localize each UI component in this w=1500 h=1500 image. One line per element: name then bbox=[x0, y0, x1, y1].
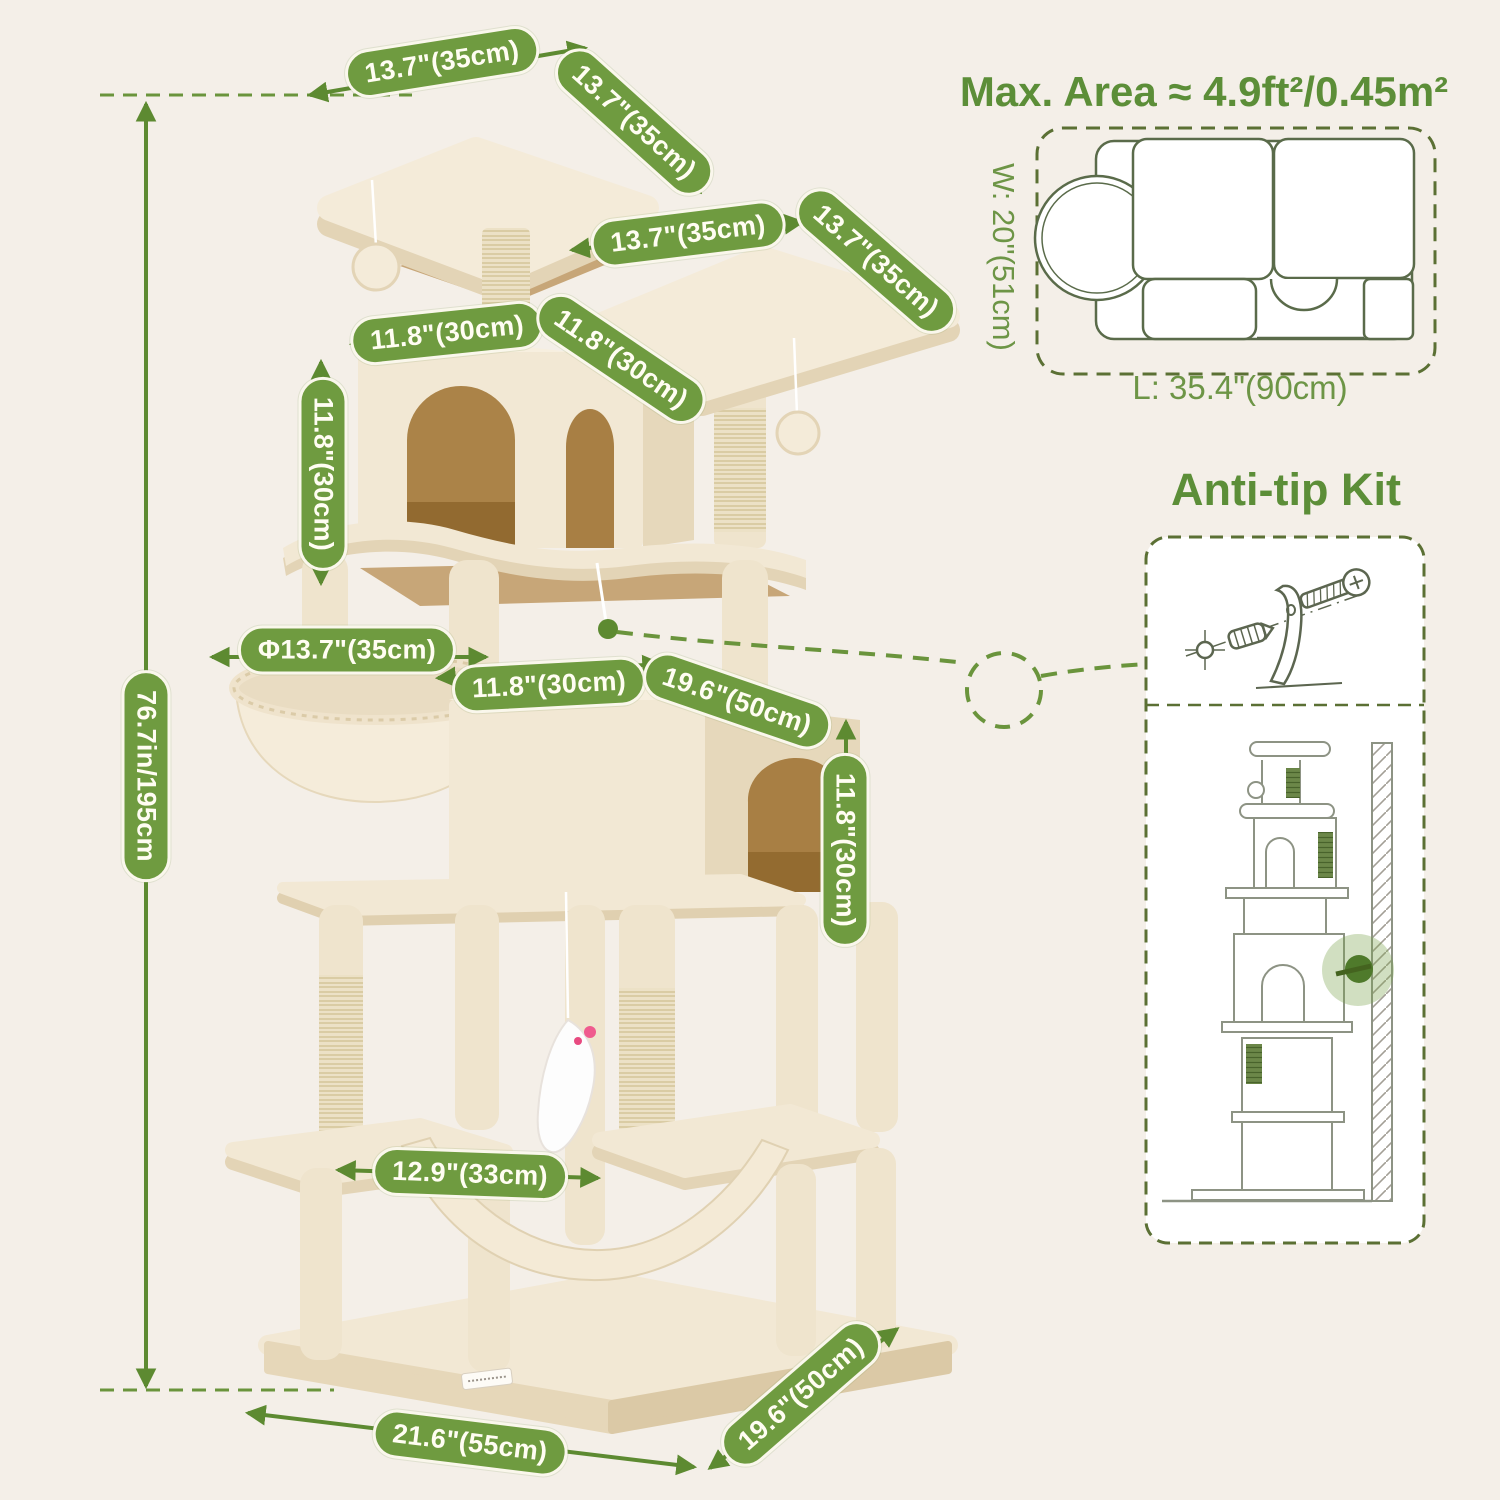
footprint-condo bbox=[1143, 279, 1256, 339]
post bbox=[300, 1168, 342, 1360]
footprint-platform-2 bbox=[1274, 139, 1414, 278]
footprint-diagram bbox=[1035, 128, 1435, 374]
dim-large-condo-width: 11.8"(30cm) bbox=[451, 655, 648, 714]
anti-tip-title: Anti-tip Kit bbox=[1146, 464, 1426, 516]
dim-large-condo-height: 11.8"(30cm) bbox=[821, 753, 870, 947]
anti-tip-panel bbox=[1146, 537, 1424, 1243]
dim-hammock-width: 12.9"(33cm) bbox=[371, 1146, 568, 1202]
scratching-post-sisal bbox=[319, 975, 363, 1145]
post bbox=[455, 905, 499, 1130]
footprint-platform-1 bbox=[1133, 139, 1273, 279]
footprint-width-label: W: 20"(51cm) bbox=[985, 163, 1021, 351]
footprint-length-label: L: 35.4"(90cm) bbox=[1132, 369, 1347, 407]
callout-dot bbox=[598, 619, 618, 639]
pompom-ball-1 bbox=[353, 244, 399, 290]
max-area-title: Max. Area ≈ 4.9ft²/0.45m² bbox=[958, 68, 1450, 116]
second-post-sisal bbox=[714, 408, 766, 532]
dim-condo-height: 11.8"(30cm) bbox=[299, 377, 348, 571]
footprint-board bbox=[1364, 279, 1413, 339]
post bbox=[856, 1148, 896, 1348]
pompom-ball-2 bbox=[777, 412, 819, 454]
post bbox=[776, 1164, 816, 1356]
dim-basket-diameter: Φ13.7"(35cm) bbox=[238, 626, 456, 675]
product-dimensions-infographic: 76.7in/195cm 13.7"(35cm) 13.7"(35cm) 13.… bbox=[0, 0, 1500, 1500]
dim-overall-height: 76.7in/195cm bbox=[122, 670, 171, 882]
